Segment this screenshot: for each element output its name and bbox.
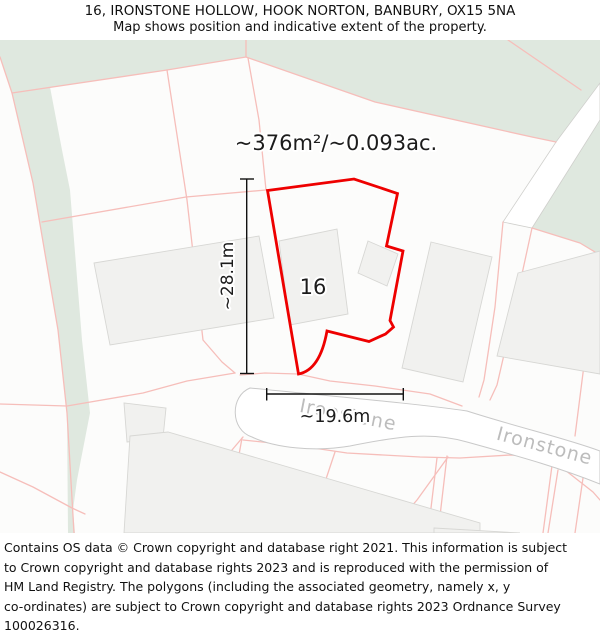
property-number-label: 16: [300, 275, 327, 299]
area-label: ~376m²/~0.093ac.: [235, 131, 437, 155]
copyright-line: 100026316.: [4, 616, 600, 636]
copyright-line: co-ordinates) are subject to Crown copyr…: [4, 597, 600, 617]
map: Ironstone Ironstone ~28.1m ~19.6m ~376m²…: [0, 40, 600, 533]
dimension-width-label: ~19.6m: [300, 407, 371, 427]
copyright-line: Contains OS data © Crown copyright and d…: [4, 538, 600, 558]
dimension-height-label: ~28.1m: [218, 242, 238, 311]
page-title: 16, IRONSTONE HOLLOW, HOOK NORTON, BANBU…: [0, 0, 600, 19]
copyright-line: HM Land Registry. The polygons (includin…: [4, 577, 600, 597]
page-subtitle: Map shows position and indicative extent…: [0, 20, 600, 35]
copyright-line: to Crown copyright and database rights 2…: [4, 558, 600, 578]
header: 16, IRONSTONE HOLLOW, HOOK NORTON, BANBU…: [0, 0, 600, 40]
copyright-text: Contains OS data © Crown copyright and d…: [0, 538, 600, 636]
map-canvas: Ironstone Ironstone ~28.1m ~19.6m ~376m²…: [0, 40, 600, 533]
